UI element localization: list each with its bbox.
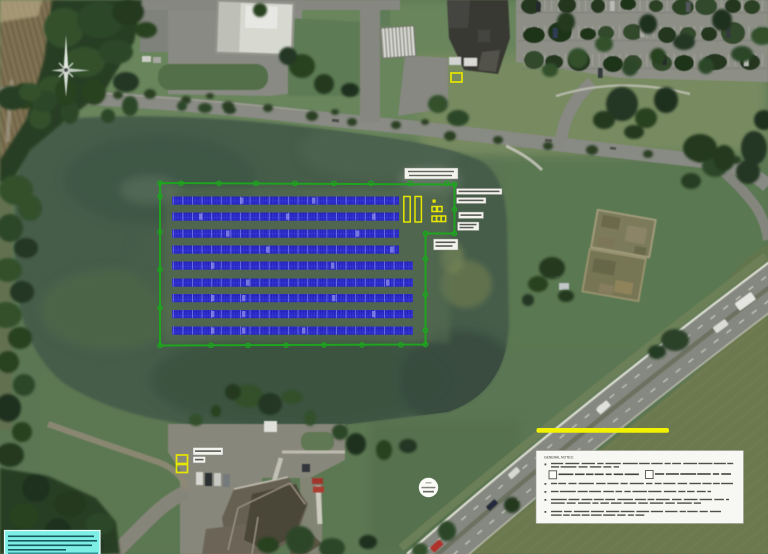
svg-text:GENERAL NOTES:: GENERAL NOTES: [544, 456, 574, 460]
